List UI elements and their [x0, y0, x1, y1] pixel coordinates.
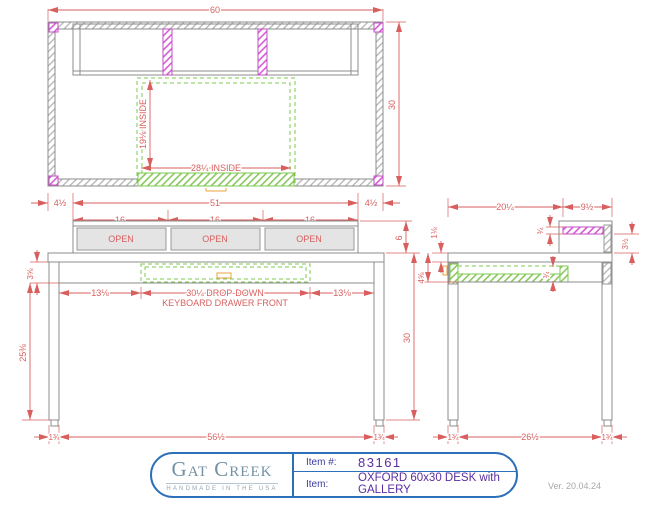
dim-gap-right: 13⅛	[333, 288, 351, 298]
plan-gallery-divider	[258, 29, 267, 75]
open-label-1: OPEN	[108, 234, 134, 244]
dim-gap-left: 13⅛	[91, 288, 109, 298]
dim-between-legs-front: 56½	[207, 432, 225, 442]
dim-inside-width: 28¼ INSIDE	[191, 163, 241, 173]
item-description-label: Item:	[306, 479, 358, 490]
title-block: Gat Creek HANDMADE IN THE USA Item #: 83…	[150, 452, 518, 498]
dim-gallery-offset-left: 4½	[54, 198, 67, 208]
dim-apron-depth: 4⅝	[417, 272, 426, 283]
dim-gallery-offset-right: 4½	[365, 198, 378, 208]
side-view	[443, 221, 612, 426]
dim-side-leg-front: 1¾	[447, 433, 458, 442]
dim-drawer-thickness: ¾	[542, 271, 551, 278]
plan-inner	[55, 29, 376, 179]
dim-apron-height: 3⅝	[26, 268, 35, 279]
front-right-leg	[374, 262, 384, 420]
dim-leg-right: 1¾	[373, 433, 384, 442]
dim-front-height: 30	[402, 333, 412, 343]
dim-gallery-depth: 9½	[581, 202, 594, 212]
item-number-row: Item #: 83161	[294, 454, 516, 471]
dim-leg-left: 1¾	[48, 433, 59, 442]
side-back-glide	[604, 420, 611, 426]
dim-shelf-thickness: ¾	[536, 227, 545, 234]
item-number-label: Item #:	[306, 457, 358, 468]
item-number-value: 83161	[358, 455, 402, 470]
dim-between-legs-side: 26½	[521, 432, 539, 442]
front-left-glide	[51, 420, 58, 426]
item-description-value: OXFORD 60x30 DESK with GALLERY	[358, 472, 516, 496]
side-desktop	[448, 253, 612, 262]
plan-leg-block	[374, 176, 383, 185]
open-label-2: OPEN	[202, 234, 228, 244]
dim-top-depth: 20¼	[496, 202, 514, 212]
dim-top-thickness: 1⅛	[430, 227, 439, 238]
dim-gallery-height: 6	[394, 235, 404, 240]
version-text: Ver. 20.04.24	[548, 481, 601, 491]
title-block-fields: Item #: 83161 Item: OXFORD 60x30 DESK wi…	[294, 454, 516, 496]
technical-drawing: 60 30 28¼ INSIDE 19⅛ INSIDE 4½ 51 4½ 16 …	[0, 0, 656, 507]
plan-leg-block	[374, 23, 383, 32]
dim-overall-depth: 30	[387, 100, 397, 110]
dim-side-leg-back: 1¾	[601, 433, 612, 442]
plan-leg-block	[49, 176, 58, 185]
dim-drawer-line-2: KEYBOARD DRAWER FRONT	[162, 298, 288, 308]
plan-leg-block	[49, 23, 58, 32]
side-front-leg	[448, 262, 458, 420]
brand-tagline: HANDMADE IN THE USA	[166, 483, 277, 492]
dim-knee-clearance: 25⅜	[18, 344, 28, 362]
side-gallery-back	[604, 225, 611, 252]
dim-overall-width: 60	[210, 5, 220, 15]
open-label-3: OPEN	[296, 234, 322, 244]
front-left-leg	[49, 262, 59, 420]
dim-inside-depth: 19⅛ INSIDE	[138, 99, 148, 149]
brand-logo: Gat Creek HANDMADE IN THE USA	[152, 454, 294, 496]
side-back-leg	[602, 262, 612, 420]
drawing-sheet: 60 30 28¼ INSIDE 19⅛ INSIDE 4½ 51 4½ 16 …	[0, 0, 656, 507]
front-view: OPEN OPEN OPEN	[48, 221, 384, 426]
side-front-glide	[450, 420, 457, 426]
dim-gallery-width: 51	[210, 198, 220, 208]
dim-drawer-line-1: 30¼ DROP-DOWN	[186, 288, 264, 298]
front-drawer-pull	[217, 273, 231, 278]
plan-gallery-divider	[163, 29, 172, 75]
side-drawer-pull	[443, 266, 447, 275]
dim-opening-height: 3½	[621, 238, 630, 249]
item-description-row: Item: OXFORD 60x30 DESK with GALLERY	[294, 471, 516, 496]
plan-drawer-pull	[206, 188, 226, 191]
side-gallery-shelf	[563, 227, 603, 234]
front-right-glide	[376, 420, 383, 426]
brand-name: Gat Creek	[172, 459, 273, 480]
front-desktop	[48, 253, 384, 262]
